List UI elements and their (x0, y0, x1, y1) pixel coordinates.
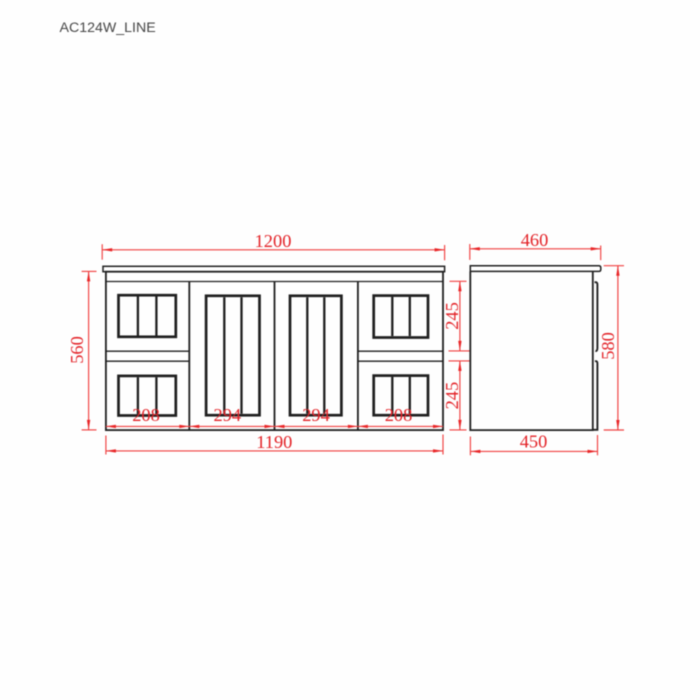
svg-text:1190: 1190 (256, 432, 292, 452)
svg-text:580: 580 (598, 332, 618, 360)
svg-text:450: 450 (520, 432, 548, 452)
svg-text:245: 245 (442, 302, 462, 330)
svg-text:294: 294 (214, 405, 242, 425)
svg-text:1200: 1200 (255, 231, 292, 251)
svg-text:460: 460 (521, 230, 549, 250)
svg-text:560: 560 (67, 336, 87, 364)
svg-text:245: 245 (442, 382, 462, 410)
svg-text:208: 208 (385, 405, 413, 425)
svg-text:294: 294 (302, 405, 330, 425)
svg-text:AC124W_LINE: AC124W_LINE (60, 20, 156, 36)
svg-text:208: 208 (132, 405, 160, 425)
